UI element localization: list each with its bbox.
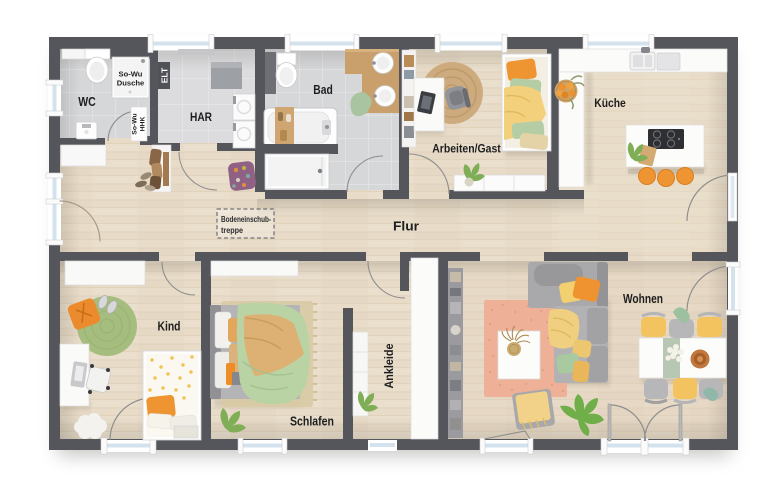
svg-text:WC: WC — [78, 94, 96, 109]
svg-text:Dusche: Dusche — [117, 79, 144, 88]
svg-text:Schlafen: Schlafen — [290, 415, 334, 429]
svg-text:Kind: Kind — [158, 320, 181, 334]
svg-text:ELT: ELT — [160, 67, 170, 83]
svg-text:Küche: Küche — [594, 96, 626, 110]
svg-text:treppe: treppe — [221, 225, 243, 235]
svg-text:Flur: Flur — [393, 220, 419, 234]
svg-text:HAR: HAR — [190, 110, 212, 124]
svg-text:HHK: HHK — [140, 117, 147, 132]
svg-text:Bad: Bad — [313, 83, 333, 97]
svg-text:Arbeiten/Gast: Arbeiten/Gast — [432, 144, 501, 156]
svg-text:Wohnen: Wohnen — [623, 292, 663, 306]
svg-text:So-Wu: So-Wu — [132, 113, 139, 134]
svg-text:Bodeneinschub-: Bodeneinschub- — [221, 214, 271, 224]
svg-text:Ankleide: Ankleide — [384, 344, 396, 389]
svg-text:So-Wu: So-Wu — [119, 70, 143, 79]
